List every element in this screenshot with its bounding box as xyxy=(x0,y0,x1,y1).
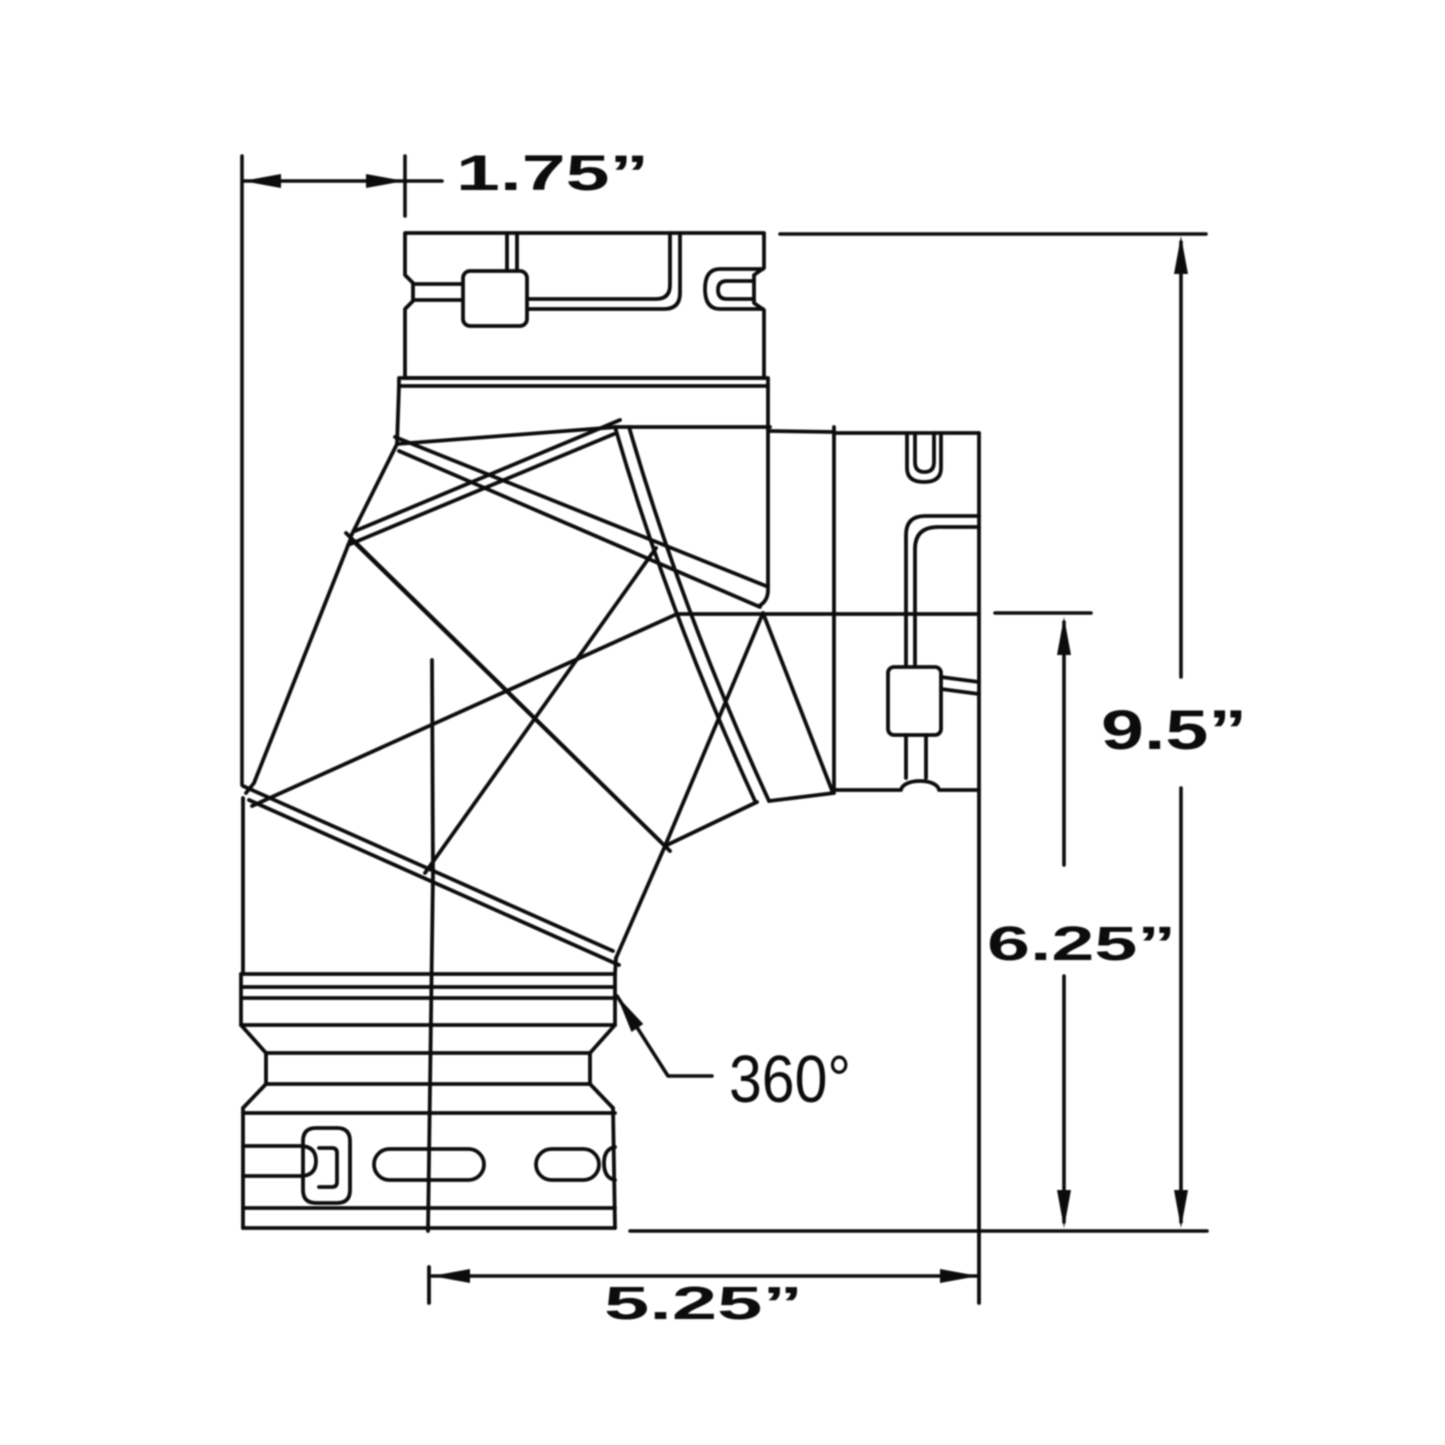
svg-text:360°: 360° xyxy=(729,1042,851,1117)
svg-text:1.75”: 1.75” xyxy=(456,145,649,201)
svg-text:5.25”: 5.25” xyxy=(604,1277,803,1329)
svg-text:9.5”: 9.5” xyxy=(1101,698,1247,761)
svg-text:6.25”: 6.25” xyxy=(987,918,1176,971)
